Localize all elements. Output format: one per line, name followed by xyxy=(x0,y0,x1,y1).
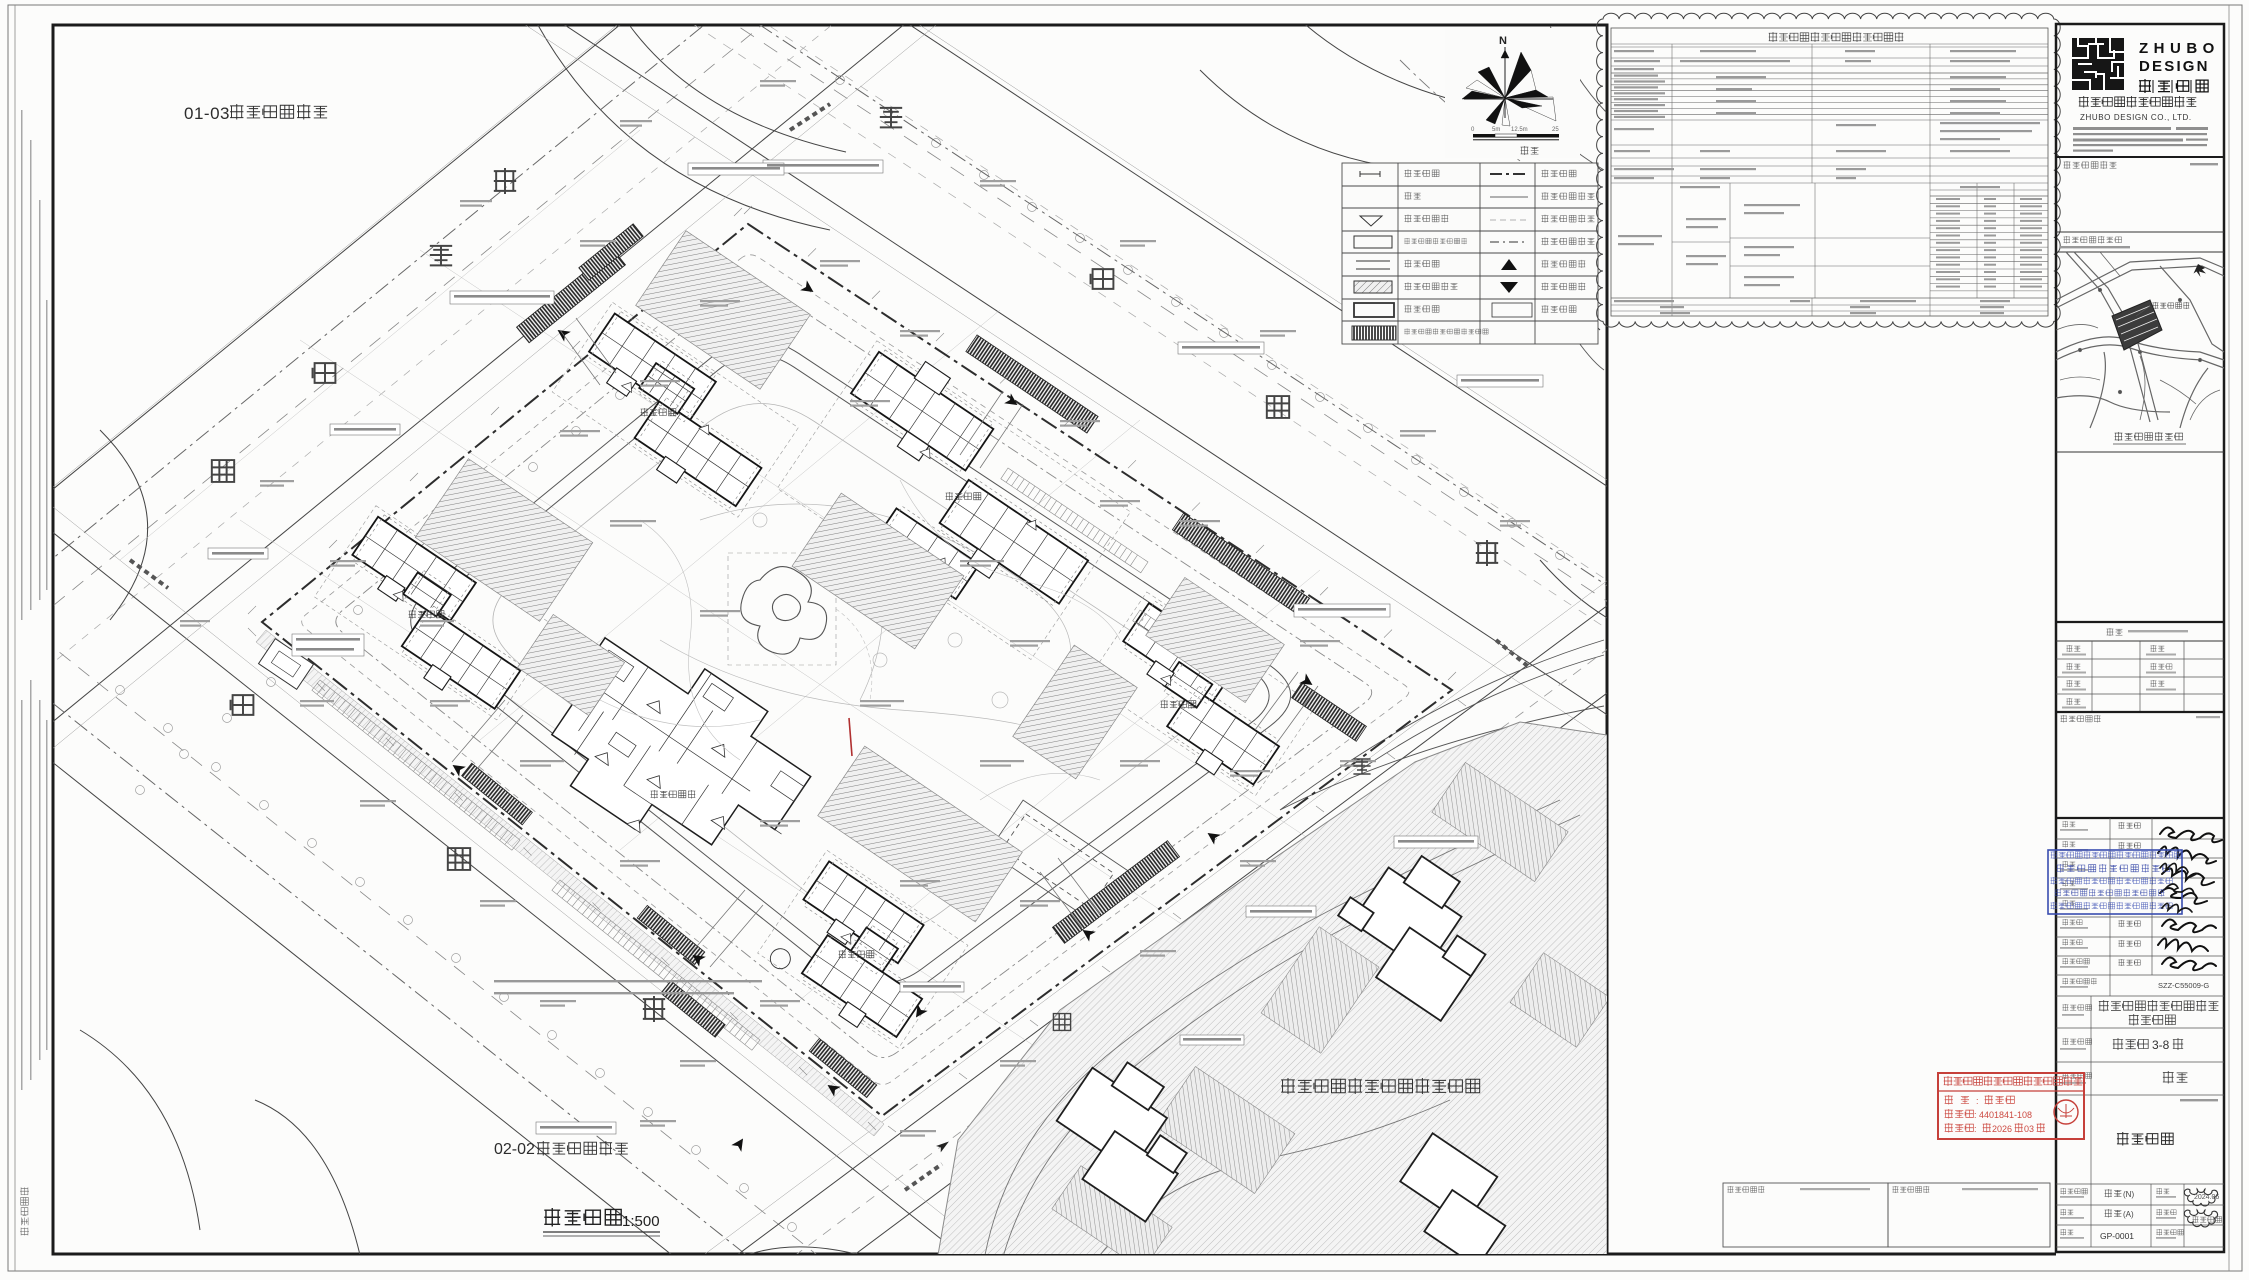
svg-text::: : xyxy=(1976,1096,1979,1106)
svg-text:3-8: 3-8 xyxy=(2152,1038,2170,1052)
svg-text:1:500: 1:500 xyxy=(622,1213,660,1230)
svg-text:5m: 5m xyxy=(1492,127,1500,133)
svg-text:01-03: 01-03 xyxy=(184,104,230,123)
svg-text:2026: 2026 xyxy=(1992,1124,2012,1134)
svg-text::: : xyxy=(1974,1124,1977,1134)
svg-text:ZHUBO DESIGN CO., LTD.: ZHUBO DESIGN CO., LTD. xyxy=(2080,113,2192,122)
svg-text:03: 03 xyxy=(2024,1124,2034,1134)
svg-text:25: 25 xyxy=(1552,127,1559,133)
svg-text:(A): (A) xyxy=(2123,1210,2134,1219)
svg-text:2024.06: 2024.06 xyxy=(2194,1194,2219,1201)
svg-text:: 4401841-108: : 4401841-108 xyxy=(1974,1110,2032,1120)
svg-text:SZZ-C55009-G: SZZ-C55009-G xyxy=(2158,981,2209,990)
svg-text:02-02: 02-02 xyxy=(494,1141,535,1158)
svg-text:GP-0001: GP-0001 xyxy=(2100,1231,2134,1241)
svg-text:ZHUBO: ZHUBO xyxy=(2139,40,2220,57)
svg-text:12.5m: 12.5m xyxy=(1511,127,1528,133)
svg-text:N: N xyxy=(1499,35,1507,47)
svg-text:(N): (N) xyxy=(2123,1190,2134,1199)
svg-text:DESIGN: DESIGN xyxy=(2139,58,2210,75)
